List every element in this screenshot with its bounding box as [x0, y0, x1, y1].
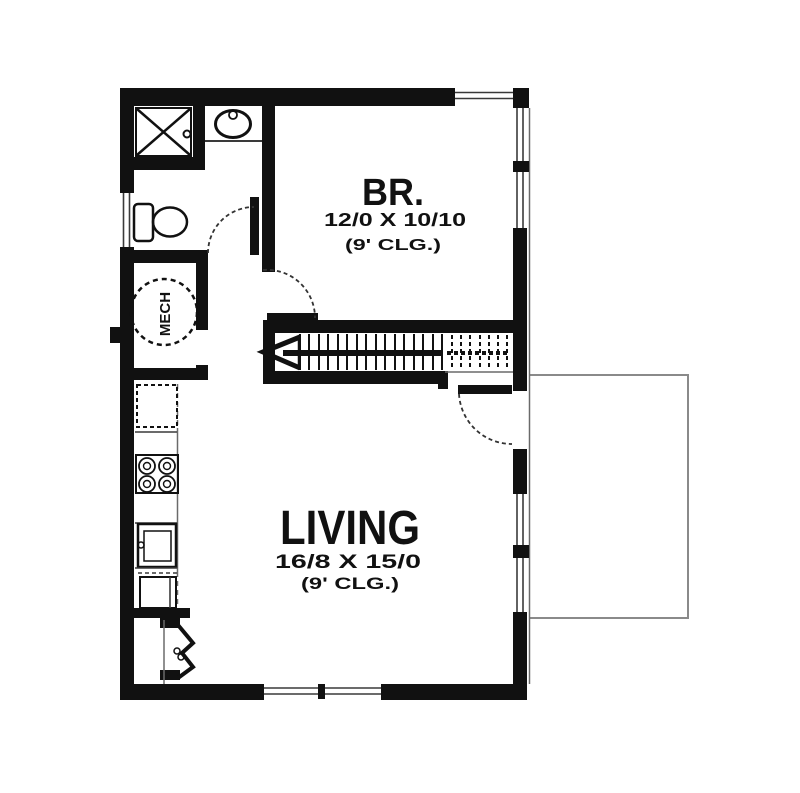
shower: [136, 108, 191, 156]
bedroom-label: BR.: [362, 172, 424, 214]
bath-sink: [205, 111, 262, 142]
living-dimensions: 16/8 X 15/0: [275, 552, 421, 573]
dishwasher: [140, 577, 176, 608]
toilet: [134, 204, 187, 241]
faucet: [229, 111, 237, 119]
stair-rail-line: [283, 350, 443, 356]
doors: [164, 197, 512, 684]
kitchen-sink: [138, 524, 176, 567]
window-top-bedroom: [455, 93, 513, 99]
bedroom-ceiling-note: (9' CLG.): [345, 237, 441, 254]
refrigerator: [137, 385, 177, 427]
mech-label: MECH: [157, 292, 174, 336]
floor-plan: BR. 12/0 X 10/10 (9' CLG.) LIVING 16/8 X…: [0, 0, 800, 793]
range: [136, 455, 178, 493]
entry-door: [458, 385, 512, 444]
stairs: [263, 334, 513, 372]
corner-post: [513, 88, 529, 108]
bedroom-door: [263, 270, 318, 322]
living-ceiling-note: (9' CLG.): [301, 574, 399, 593]
entry-jamb: [438, 371, 448, 389]
closet-jamb: [160, 670, 180, 680]
bedroom-dimensions: 12/0 X 10/10: [324, 210, 466, 230]
deck-outline: [529, 375, 688, 618]
kitchen-fixtures: [135, 384, 178, 608]
window-mullion: [513, 545, 529, 558]
window-mullion: [318, 684, 325, 699]
counter-end-cap: [133, 608, 190, 618]
left-wall-projection: [110, 327, 120, 343]
living-label: LIVING: [280, 502, 420, 555]
bathroom-door: [208, 197, 259, 255]
floor-plan-canvas: BR. 12/0 X 10/10 (9' CLG.) LIVING 16/8 X…: [0, 0, 800, 793]
shower-door-knob: [184, 131, 191, 138]
window-mullion: [513, 161, 529, 172]
window-left-bath: [124, 193, 130, 247]
